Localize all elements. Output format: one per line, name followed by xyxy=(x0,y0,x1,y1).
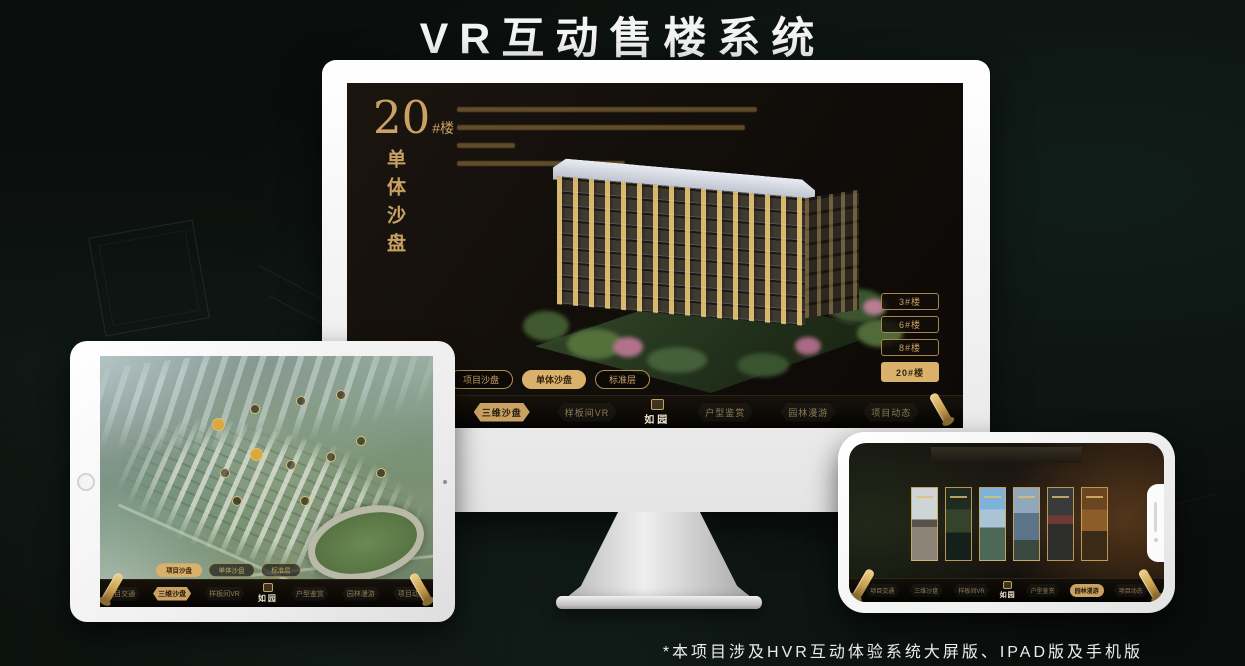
building-badge-icon[interactable] xyxy=(326,452,336,462)
brand-logo-text: 如园 xyxy=(644,411,670,426)
nav-item-showroom-vr[interactable]: 样板间VR xyxy=(204,587,245,601)
brand-logo[interactable]: 如园 xyxy=(258,583,278,604)
phone-speaker-icon xyxy=(1154,502,1157,532)
phone-navbar: 项目交通 三维沙盘 样板间VR 如园 户型鉴赏 园林漫游 项目动态 xyxy=(849,578,1164,602)
brand-seal-icon xyxy=(651,399,664,410)
building-number-suffix: #楼 xyxy=(432,120,454,136)
model-tree xyxy=(647,347,707,373)
tab-project-sandtable[interactable]: 项目沙盘 xyxy=(449,370,513,389)
tablet-screen: 项目沙盘 单体沙盘 标准层 项目交通 三维沙盘 样板间VR 如园 户型鉴赏 园林… xyxy=(100,356,433,607)
model-flower-tree xyxy=(795,337,821,355)
poster-page: VR互动售楼系统 20#楼 单体沙盘 xyxy=(0,0,1245,666)
description-line xyxy=(457,125,745,130)
tablet-device: 项目沙盘 单体沙盘 标准层 项目交通 三维沙盘 样板间VR 如园 户型鉴赏 园林… xyxy=(70,341,455,622)
phone-camera-icon xyxy=(1154,538,1158,542)
tablet-view-tabs: 项目沙盘 单体沙盘 标准层 xyxy=(156,563,301,577)
phone-device: 项目交通 三维沙盘 样板间VR 如园 户型鉴赏 园林漫游 项目动态 xyxy=(838,432,1175,613)
building-badge-icon[interactable] xyxy=(336,390,346,400)
scene-card[interactable] xyxy=(979,487,1006,561)
nav-item-showroom-vr[interactable]: 样板间VR xyxy=(953,584,989,597)
view-tabs: 项目沙盘 单体沙盘 标准层 xyxy=(449,370,650,389)
tab-standard-floor[interactable]: 标准层 xyxy=(595,370,650,389)
floor-button-8[interactable]: 8#楼 xyxy=(881,339,939,356)
interior-ceiling-beam xyxy=(931,447,1082,463)
nav-item-3d-sandtable-active[interactable]: 三维沙盘 xyxy=(153,587,191,601)
brand-logo[interactable]: 如园 xyxy=(1000,581,1016,600)
brand-logo-text: 如园 xyxy=(258,593,278,604)
floor-button-3[interactable]: 3#楼 xyxy=(881,293,939,310)
building-badge-icon[interactable] xyxy=(300,496,310,506)
tablet-tab-project-sandtable[interactable]: 项目沙盘 xyxy=(156,563,202,577)
nav-item-garden-roam[interactable]: 园林漫游 xyxy=(342,587,380,601)
scene-card[interactable] xyxy=(911,487,938,561)
brand-logo[interactable]: 如园 xyxy=(644,399,670,426)
nav-item-garden-roam[interactable]: 园林漫游 xyxy=(780,403,836,422)
page-title: VR互动售楼系统 xyxy=(0,4,1245,66)
scene-gallery xyxy=(911,487,1108,561)
brand-seal-icon xyxy=(1003,581,1012,589)
phone-notch xyxy=(1147,484,1164,562)
scene-card[interactable] xyxy=(1047,487,1074,561)
background-plaque xyxy=(88,220,210,337)
building-badge-icon[interactable] xyxy=(296,396,306,406)
building-3d-model[interactable] xyxy=(527,161,897,396)
tablet-home-button[interactable] xyxy=(77,473,95,491)
floor-button-group: 3#楼 6#楼 8#楼 20#楼 xyxy=(881,293,939,382)
tab-single-sandtable[interactable]: 单体沙盘 xyxy=(522,370,586,389)
model-sidewall xyxy=(805,190,859,319)
description-line xyxy=(457,143,515,148)
tablet-tab-standard-floor[interactable]: 标准层 xyxy=(261,563,301,577)
nav-item-project-news[interactable]: 项目动态 xyxy=(863,403,919,422)
phone-screen: 项目交通 三维沙盘 样板间VR 如园 户型鉴赏 园林漫游 项目动态 xyxy=(849,443,1164,602)
nav-item-3d-sandtable[interactable]: 三维沙盘 xyxy=(909,584,943,597)
nav-item-unit-plans[interactable]: 户型鉴赏 xyxy=(291,587,329,601)
monitor-stand-neck xyxy=(566,512,752,598)
brand-seal-icon xyxy=(263,583,273,592)
building-badge-icon[interactable] xyxy=(250,448,263,461)
headline-vertical-label: 单体沙盘 xyxy=(381,149,408,261)
nav-item-garden-roam-active[interactable]: 园林漫游 xyxy=(1070,584,1104,597)
scene-card[interactable] xyxy=(945,487,972,561)
nav-item-traffic[interactable]: 项目交通 xyxy=(865,584,899,597)
scene-card[interactable] xyxy=(1013,487,1040,561)
tablet-camera-icon xyxy=(443,480,447,484)
tablet-tab-single-sandtable[interactable]: 单体沙盘 xyxy=(209,563,255,577)
footnote-text: *本项目涉及HVR互动体验系统大屏版、IPAD版及手机版 xyxy=(663,638,1143,662)
nav-item-3d-sandtable-active[interactable]: 三维沙盘 xyxy=(474,403,530,422)
building-badge-icon[interactable] xyxy=(376,468,386,478)
scene-card[interactable] xyxy=(1081,487,1108,561)
nav-item-showroom-vr[interactable]: 样板间VR xyxy=(557,403,618,422)
floor-button-20-selected[interactable]: 20#楼 xyxy=(881,362,939,382)
model-tree xyxy=(737,353,789,377)
building-badge-icon[interactable] xyxy=(356,436,366,446)
building-number: 20 xyxy=(373,91,430,144)
brand-logo-text: 如园 xyxy=(1000,590,1016,600)
nav-item-unit-plans[interactable]: 户型鉴赏 xyxy=(697,403,753,422)
description-line xyxy=(457,107,757,112)
monitor-stand-base xyxy=(556,596,762,609)
nav-item-project-news[interactable]: 项目动态 xyxy=(1114,584,1148,597)
model-tree xyxy=(523,311,569,341)
building-badge-icon[interactable] xyxy=(212,418,225,431)
nav-item-unit-plans[interactable]: 户型鉴赏 xyxy=(1026,584,1060,597)
building-badge-icon[interactable] xyxy=(286,460,296,470)
building-badge-icon[interactable] xyxy=(232,496,242,506)
building-badge-icon[interactable] xyxy=(250,404,260,414)
model-flower-tree xyxy=(613,337,643,357)
tablet-navbar: 项目交通 三维沙盘 样板间VR 如园 户型鉴赏 园林漫游 项目动态 xyxy=(100,579,433,607)
floor-button-6[interactable]: 6#楼 xyxy=(881,316,939,333)
building-badge-icon[interactable] xyxy=(220,468,230,478)
building-headline: 20#楼 xyxy=(373,95,454,140)
model-facade xyxy=(557,176,805,326)
